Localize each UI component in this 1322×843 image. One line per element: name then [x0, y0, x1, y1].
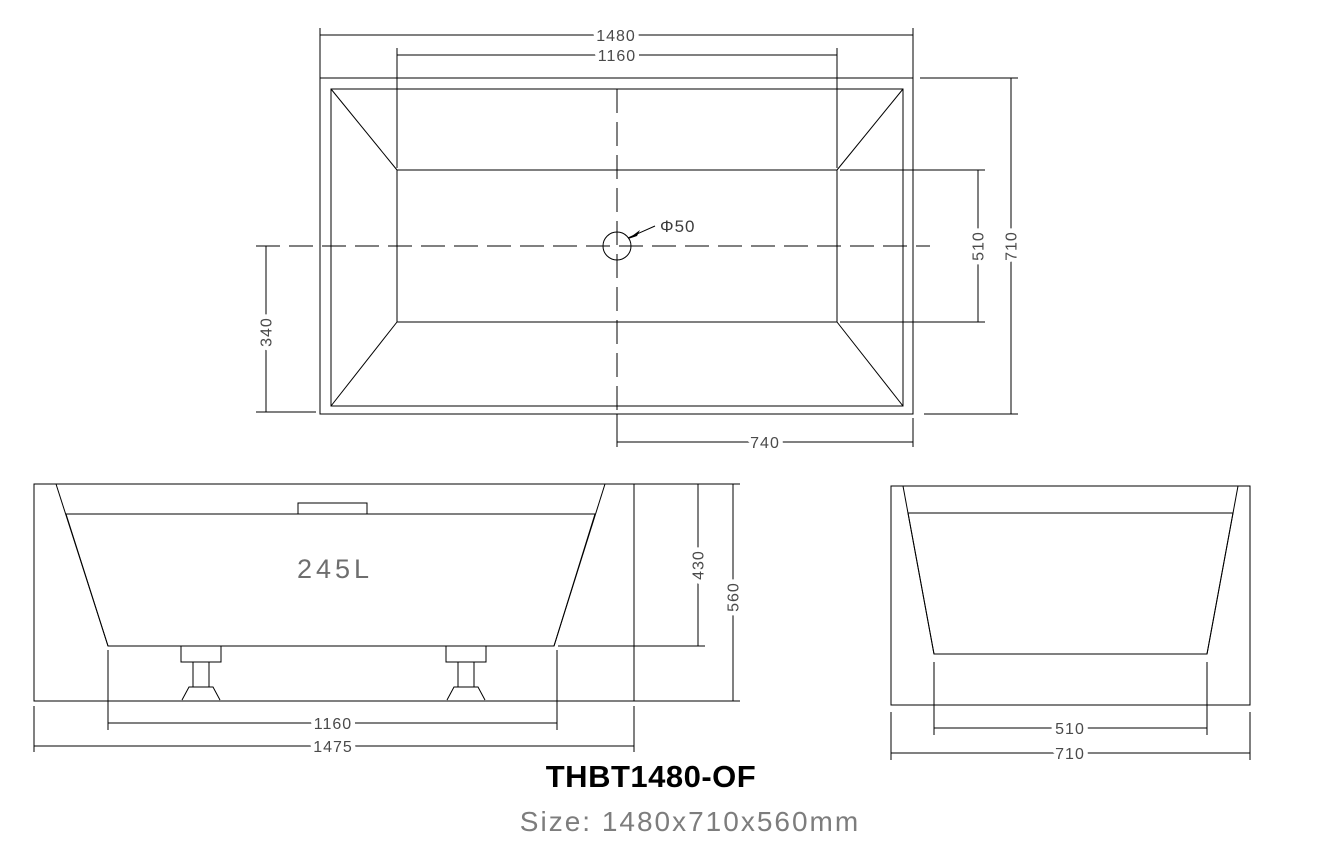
- dim-text-1160-top: 1160: [598, 48, 636, 65]
- dim-text-510-side: 510: [1055, 721, 1085, 738]
- top-view: Φ50 1480 1160 510 710: [256, 28, 1021, 452]
- dim-front-inner-depth: 430: [558, 484, 740, 646]
- dim-text-1160-front: 1160: [314, 716, 352, 733]
- dim-top-drain-offset: 740: [617, 418, 913, 452]
- dim-text-1480: 1480: [596, 28, 636, 45]
- dim-text-1475: 1475: [313, 739, 353, 756]
- front-view-left-wall-slope: [56, 484, 108, 646]
- model-number: THBT1480-OF: [546, 759, 756, 794]
- drain-leader: Φ50: [628, 217, 695, 239]
- side-view-outer-box: [891, 486, 1250, 705]
- capacity-label: 245L: [297, 554, 373, 584]
- dim-text-560: 560: [726, 582, 743, 612]
- dim-text-710-top: 710: [1004, 231, 1021, 261]
- drain-diameter-label: Φ50: [660, 217, 695, 236]
- front-view-right-wall-slope: [554, 484, 605, 646]
- dim-text-710-side: 710: [1055, 746, 1085, 763]
- tub-leg-left: [181, 646, 221, 700]
- dim-side-base-width: 510: [934, 662, 1207, 738]
- dim-text-340: 340: [259, 317, 276, 347]
- dim-front-overall-height: 560: [634, 484, 743, 701]
- leg-foot: [447, 687, 485, 700]
- overflow-slot: [298, 503, 367, 514]
- side-view: 510 710: [891, 486, 1250, 763]
- tub-leg-right: [446, 646, 486, 700]
- dim-text-430: 430: [691, 550, 708, 580]
- dim-top-centre-offset: 340: [256, 246, 316, 412]
- side-view-right-wall-slope: [1207, 486, 1238, 654]
- front-view: 245L 430 560 1160: [34, 484, 743, 756]
- technical-drawing-sheet: Φ50 1480 1160 510 710: [0, 0, 1322, 843]
- title-block: THBT1480-OF Size: 1480x710x560mm: [520, 759, 860, 837]
- dim-text-510-top: 510: [971, 231, 988, 261]
- side-view-water-fill: [908, 513, 1233, 654]
- leg-foot: [182, 687, 220, 700]
- bathtub-dimension-drawing: Φ50 1480 1160 510 710: [0, 0, 1322, 843]
- dim-text-740: 740: [750, 435, 780, 452]
- side-view-left-wall-slope: [903, 486, 934, 654]
- dim-front-base-length: 1160: [108, 650, 557, 733]
- front-view-outer-box: [34, 484, 634, 701]
- overall-size-label: Size: 1480x710x560mm: [520, 806, 860, 837]
